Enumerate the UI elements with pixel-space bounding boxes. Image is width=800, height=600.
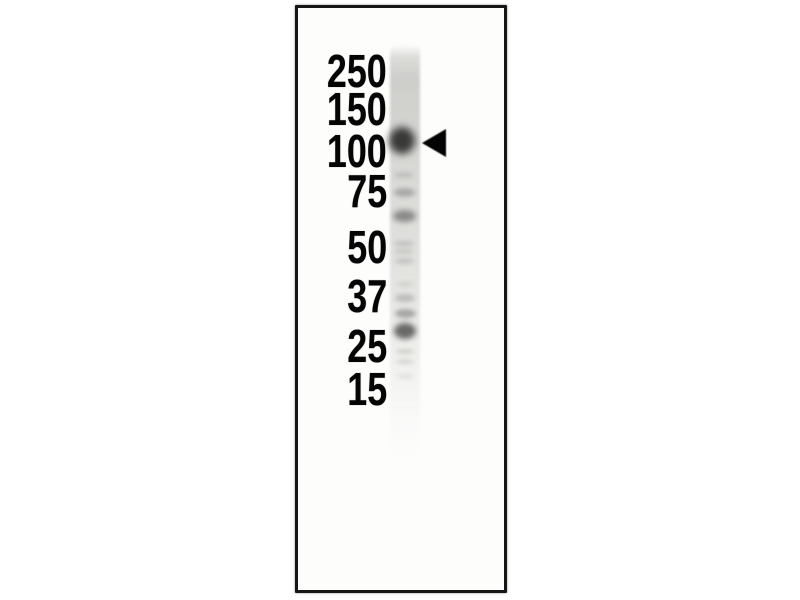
western-blot-figure: 2501501007550372515 (0, 0, 800, 600)
band-pointer-arrowhead (422, 129, 446, 157)
gel-lane (390, 45, 420, 457)
